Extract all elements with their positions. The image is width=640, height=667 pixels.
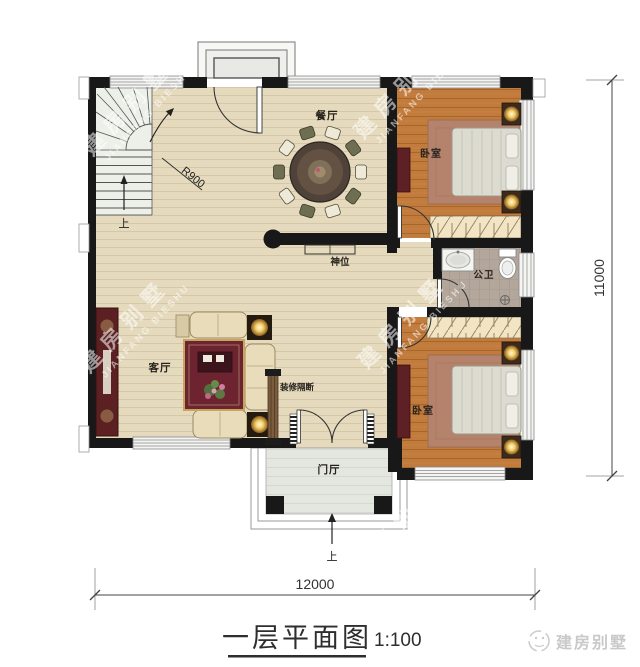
wardrobe-bedroom1: [430, 216, 521, 238]
porch-column-left: [266, 496, 284, 514]
dimension-bottom: 12000: [90, 568, 540, 610]
sofa-back: [190, 312, 247, 338]
living-rug: [184, 340, 244, 410]
sofa-side-table: [176, 315, 189, 337]
label-dining: 餐厅: [315, 109, 339, 122]
rear-steps: [198, 42, 295, 78]
logo-text: 建房别墅: [556, 633, 628, 652]
stairs-up-label: 上: [119, 217, 130, 230]
logo: 建房别墅: [529, 631, 628, 652]
floor-drain: [501, 296, 510, 305]
window-right-bathroom: [519, 253, 534, 297]
label-bedroom2: 卧室: [412, 404, 434, 417]
bedroom2-dresser: [397, 365, 410, 438]
label-partition: 装修隔断: [279, 382, 315, 392]
bedroom1-dresser: [397, 148, 410, 192]
label-shrine: 神位: [330, 256, 350, 268]
dimension-width-value: 12000: [296, 576, 335, 592]
dimension-height-value: 11000: [591, 259, 607, 297]
window-living-bottom: [133, 437, 230, 449]
wardrobe-bedroom2: [427, 317, 521, 338]
porch-column-right: [374, 496, 392, 514]
dimension-right: 11000: [586, 75, 624, 481]
floor-plan-page: R900 上: [0, 0, 640, 667]
title-block: 一层平面图 1:100: [222, 623, 422, 658]
plan-scale: 1:100: [374, 630, 422, 651]
label-bedroom1: 卧室: [420, 147, 442, 160]
porch-up-label: 上: [327, 550, 338, 563]
label-living: 客厅: [148, 361, 172, 374]
label-bathroom: 公卫: [473, 270, 494, 281]
logo-icon: [529, 631, 549, 651]
bedroom1-bed: [452, 128, 521, 196]
plan-title: 一层平面图: [222, 623, 372, 653]
floor-plan-canvas: R900 上: [0, 0, 640, 667]
sink: [442, 249, 474, 271]
label-entry: 门厅: [318, 463, 341, 476]
floor-lamp-top: [247, 315, 272, 340]
sofa-front: [193, 410, 247, 438]
floor-porch: [266, 448, 392, 514]
window-top-dining: [288, 76, 380, 88]
bedroom2-bed: [452, 366, 521, 434]
toilet: [499, 249, 516, 279]
